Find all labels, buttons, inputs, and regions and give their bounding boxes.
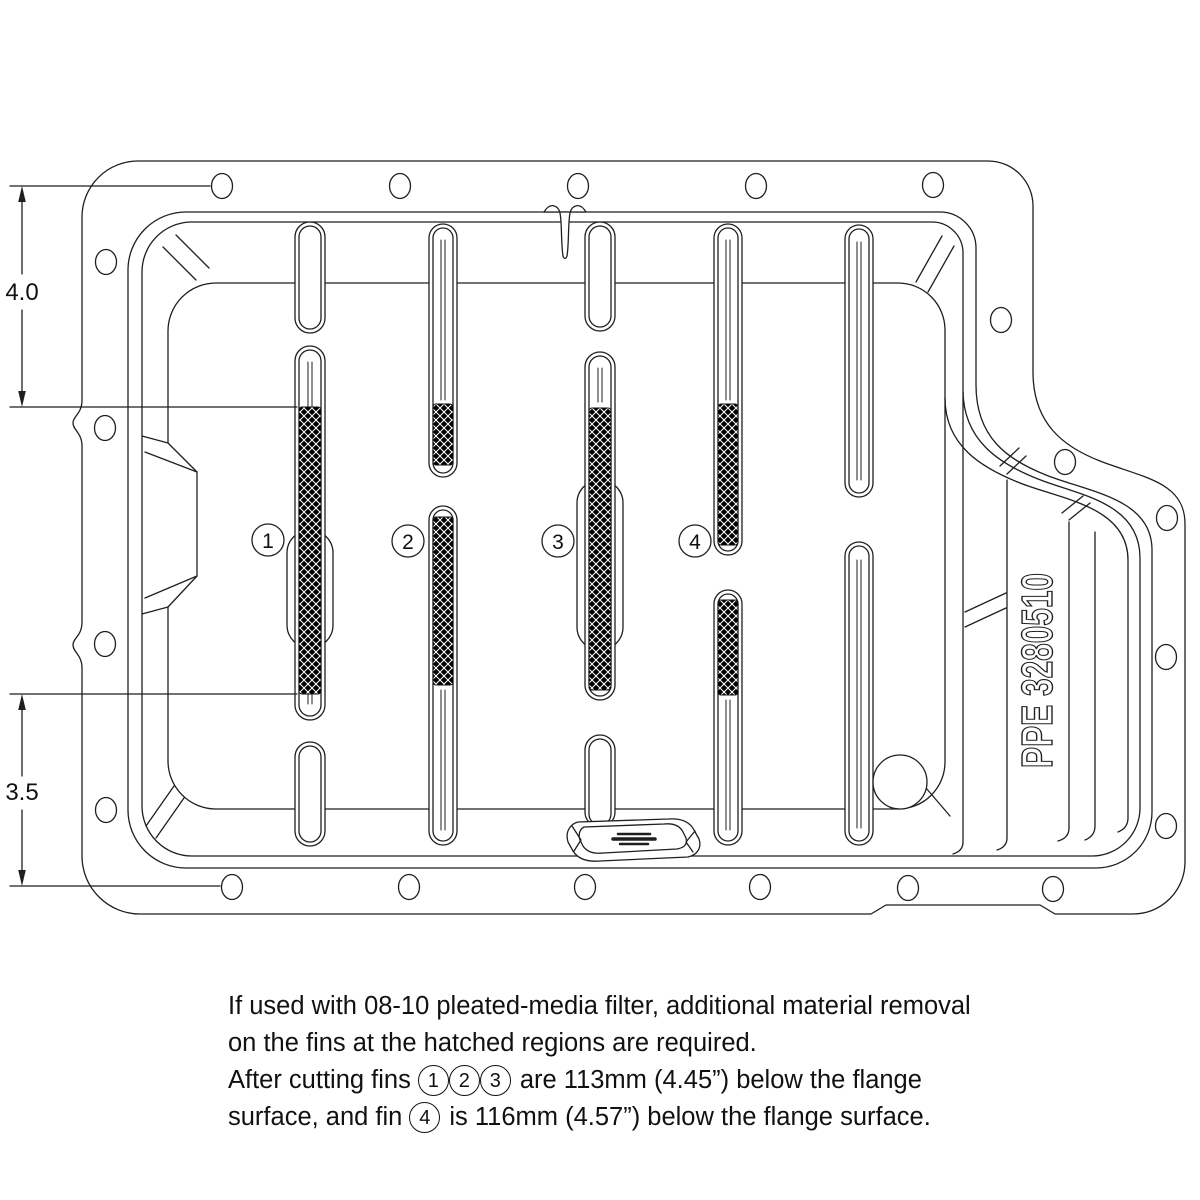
fin-callout-4: 4 [689, 531, 701, 554]
circled-fin-3: 3 [480, 1065, 511, 1096]
fin-callout-3: 3 [552, 531, 564, 554]
bolt-hole [1156, 645, 1177, 670]
bolt-hole [1156, 814, 1177, 839]
notes-line-4-prefix: surface, and fin [228, 1099, 402, 1136]
notes-line-3: After cutting fins 1 2 3 are 113mm (4.45… [228, 1062, 971, 1099]
bolt-hole [575, 875, 596, 900]
fin-2-hatch-upper [433, 404, 453, 465]
bolt-hole [991, 308, 1012, 333]
bolt-hole [390, 174, 411, 199]
dimension-4-0 [10, 186, 297, 407]
dimension-3-5 [10, 694, 297, 886]
bolt-hole [746, 174, 767, 199]
bolt-hole [96, 798, 117, 823]
circled-fin-2: 2 [449, 1065, 480, 1096]
pickup-pad [567, 819, 700, 861]
fin-3-hatch [589, 408, 611, 690]
transmission-pan-drawing: 4.0 3.5 1 2 3 4 PPE 3280510 If used with… [0, 0, 1200, 1200]
bolt-hole [95, 632, 116, 657]
notes-line-2-text: on the fins at the hatched regions are r… [228, 1025, 757, 1062]
notes-line-4: surface, and fin 4 is 116mm (4.57”) belo… [228, 1099, 971, 1136]
top-notch [544, 206, 586, 259]
fin-column-2 [429, 224, 457, 845]
fin-4-hatch-lower [718, 600, 738, 695]
bolt-hole [222, 875, 243, 900]
circled-fin-4: 4 [409, 1102, 440, 1133]
fin-callout-2: 2 [402, 531, 414, 554]
fin-column-1 [287, 222, 333, 846]
notes-line-4-suffix: is 116mm (4.57”) below the flange surfac… [449, 1099, 930, 1136]
notes-line-3-suffix: are 113mm (4.45”) below the flange [520, 1062, 922, 1099]
drain-plug [873, 755, 927, 809]
bolt-hole [212, 174, 233, 199]
notes-line-3-prefix: After cutting fins [228, 1062, 411, 1099]
bolt-hole [923, 173, 944, 198]
notes-block: If used with 08-10 pleated-media filter,… [228, 988, 971, 1136]
outer-flange-outline [73, 161, 1185, 914]
sump-wall-vertical-d [1085, 532, 1095, 840]
fin-column-4 [714, 224, 742, 845]
bolt-hole [1157, 506, 1178, 531]
bolt-hole [568, 174, 589, 199]
fin-4-hatch-upper [718, 404, 738, 545]
sump-wall-vertical-a [953, 392, 963, 854]
left-wall-bulge-facets [142, 436, 197, 614]
part-number-text: PPE 3280510 [1013, 573, 1062, 768]
bolt-hole [96, 250, 117, 275]
bolt-hole [1043, 877, 1064, 902]
fin-callout-1: 1 [262, 530, 274, 553]
bolt-hole [95, 416, 116, 441]
bolt-hole [898, 876, 919, 901]
fin-2-hatch-lower [433, 517, 453, 685]
notes-line-1: If used with 08-10 pleated-media filter,… [228, 988, 971, 1025]
sump-wall-vertical-b [997, 480, 1007, 850]
notes-line-1-text: If used with 08-10 pleated-media filter,… [228, 988, 971, 1025]
bolt-hole [750, 875, 771, 900]
fin-1-hatch [299, 407, 321, 694]
bolt-hole [399, 875, 420, 900]
fin-column-5 [845, 225, 873, 845]
dim-label-3-5: 3.5 [5, 779, 38, 806]
fin-column-3 [577, 222, 623, 827]
circled-fin-1: 1 [418, 1065, 449, 1096]
dim-label-4-0: 4.0 [5, 279, 38, 306]
bolt-hole [1055, 450, 1076, 475]
notes-line-2: on the fins at the hatched regions are r… [228, 1025, 971, 1062]
